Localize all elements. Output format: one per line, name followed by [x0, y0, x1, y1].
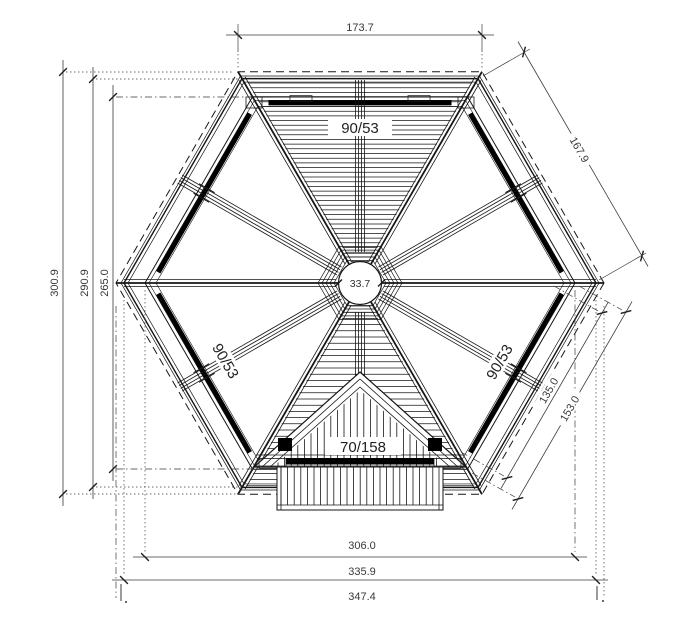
drawing-canvas: 173.7 300.9 290.9 265.0 167.9 135.0 153.…: [0, 0, 677, 627]
dim-left-outer: 300.9: [49, 269, 61, 297]
label-purlin-lower-left: 90/53: [208, 341, 241, 382]
dim-left-inner: 265.0: [99, 269, 111, 297]
label-purlin-lower-right-group: 90/53: [476, 331, 523, 394]
label-purlin-top-group: 90/53: [328, 119, 392, 137]
dim-bottom-mid: 335.9: [348, 566, 376, 578]
dim-edge-upper-right-group: 167.9: [565, 131, 594, 169]
dim-edge-lower-right-group: 153.0: [555, 389, 585, 428]
label-purlin-top: 90/53: [341, 120, 379, 137]
annotation-text: 173.7 300.9 290.9 265.0 167.9 135.0 153.…: [49, 22, 594, 603]
dim-bottom-outer: 347.4: [348, 591, 376, 603]
dim-top-edge: 173.7: [346, 22, 374, 34]
dim-edge-lower-right: 153.0: [558, 394, 582, 424]
roof-plan-svg: 173.7 300.9 290.9 265.0 167.9 135.0 153.…: [0, 0, 677, 627]
dim-bottom-inner: 306.0: [348, 540, 376, 552]
dim-center-hub: 33.7: [350, 278, 371, 290]
dim-left-mid: 290.9: [79, 269, 91, 297]
label-gable-boards: 70/158: [340, 439, 386, 456]
dim-purlin-lower-right: 135.0: [537, 376, 561, 406]
label-gable-boards-group: 70/158: [325, 437, 401, 456]
dim-edge-upper-right: 167.9: [567, 135, 591, 165]
